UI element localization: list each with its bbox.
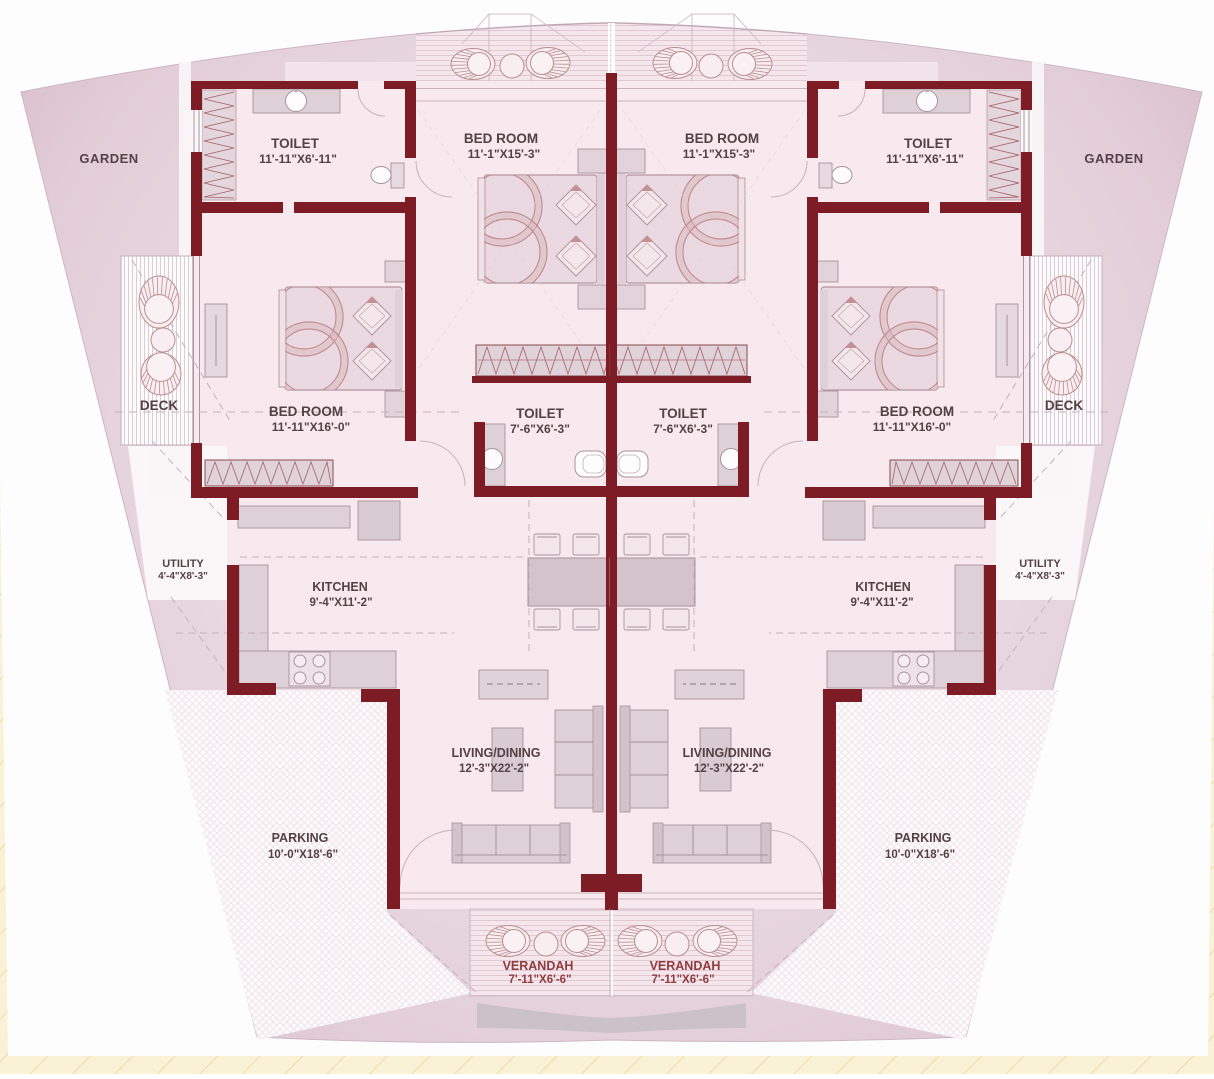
svg-text:11'-1"X15'-3": 11'-1"X15'-3" — [468, 147, 540, 161]
svg-text:11'-11"X6'-11": 11'-11"X6'-11" — [886, 152, 964, 166]
svg-text:11'-11"X16'-0": 11'-11"X16'-0" — [873, 420, 951, 434]
svg-text:11'-1"X15'-3": 11'-1"X15'-3" — [683, 147, 755, 161]
svg-text:9'-4"X11'-2": 9'-4"X11'-2" — [309, 597, 372, 609]
svg-text:PARKING: PARKING — [895, 831, 952, 845]
svg-text:VERANDAH: VERANDAH — [650, 959, 721, 973]
svg-text:KITCHEN: KITCHEN — [855, 580, 911, 594]
svg-text:12'-3"X22'-2": 12'-3"X22'-2" — [459, 763, 529, 775]
svg-text:BED ROOM: BED ROOM — [685, 131, 759, 146]
svg-text:9'-4"X11'-2": 9'-4"X11'-2" — [850, 597, 913, 609]
svg-text:DECK: DECK — [140, 398, 179, 413]
svg-text:LIVING/DINING: LIVING/DINING — [452, 746, 541, 760]
svg-text:KITCHEN: KITCHEN — [312, 580, 368, 594]
svg-text:TOILET: TOILET — [659, 406, 708, 421]
svg-text:7'-11"X6'-6": 7'-11"X6'-6" — [508, 974, 571, 986]
svg-text:TOILET: TOILET — [904, 136, 953, 151]
svg-text:7'-6"X6'-3": 7'-6"X6'-3" — [510, 422, 570, 436]
svg-text:11'-11"X6'-11": 11'-11"X6'-11" — [259, 152, 337, 166]
svg-text:UTILITY: UTILITY — [1019, 558, 1061, 570]
svg-text:7'-6"X6'-3": 7'-6"X6'-3" — [653, 422, 713, 436]
svg-text:BED ROOM: BED ROOM — [880, 404, 954, 419]
svg-text:PARKING: PARKING — [272, 831, 329, 845]
svg-text:DECK: DECK — [1045, 398, 1084, 413]
svg-text:VERANDAH: VERANDAH — [503, 959, 574, 973]
svg-text:BED ROOM: BED ROOM — [269, 404, 343, 419]
svg-text:12'-3"X22'-2": 12'-3"X22'-2" — [694, 763, 764, 775]
svg-text:BED ROOM: BED ROOM — [464, 131, 538, 146]
svg-text:4'-4"X8'-3": 4'-4"X8'-3" — [1015, 571, 1065, 582]
svg-text:7'-11"X6'-6": 7'-11"X6'-6" — [651, 974, 714, 986]
svg-text:UTILITY: UTILITY — [162, 558, 204, 570]
svg-text:GARDEN: GARDEN — [1084, 151, 1143, 166]
svg-text:TOILET: TOILET — [271, 136, 320, 151]
svg-text:4'-4"X8'-3": 4'-4"X8'-3" — [158, 571, 208, 582]
svg-text:LIVING/DINING: LIVING/DINING — [683, 746, 772, 760]
svg-text:10'-0"X18'-6": 10'-0"X18'-6" — [268, 849, 338, 861]
svg-text:11'-11"X16'-0": 11'-11"X16'-0" — [272, 420, 350, 434]
svg-text:GARDEN: GARDEN — [79, 151, 138, 166]
svg-text:TOILET: TOILET — [516, 406, 565, 421]
svg-text:10'-0"X18'-6": 10'-0"X18'-6" — [885, 849, 955, 861]
